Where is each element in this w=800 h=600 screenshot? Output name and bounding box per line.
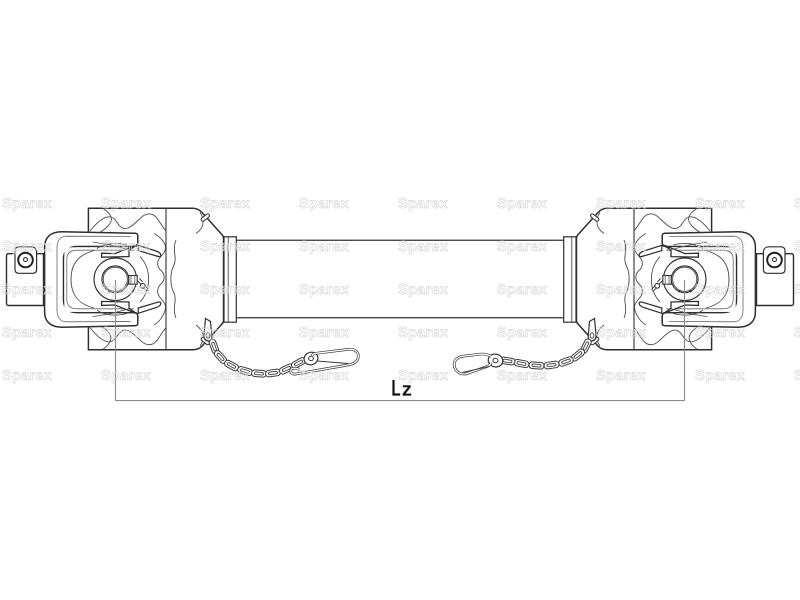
svg-text:Sparex: Sparex: [497, 196, 547, 212]
svg-text:Sparex: Sparex: [398, 282, 448, 298]
svg-text:Sparex: Sparex: [398, 325, 448, 341]
svg-text:Sparex: Sparex: [398, 239, 448, 255]
svg-text:Sparex: Sparex: [596, 239, 646, 255]
svg-text:Sparex: Sparex: [200, 325, 250, 341]
svg-text:Sparex: Sparex: [794, 368, 800, 384]
svg-text:Sparex: Sparex: [695, 239, 745, 255]
svg-text:Sparex: Sparex: [794, 196, 800, 212]
svg-text:Sparex: Sparex: [596, 282, 646, 298]
svg-text:Sparex: Sparex: [200, 239, 250, 255]
svg-text:Sparex: Sparex: [695, 282, 745, 298]
svg-text:Sparex: Sparex: [497, 239, 547, 255]
svg-text:Sparex: Sparex: [2, 239, 52, 255]
svg-text:Sparex: Sparex: [200, 368, 250, 384]
svg-text:Sparex: Sparex: [101, 368, 151, 384]
svg-text:Sparex: Sparex: [2, 325, 52, 341]
svg-text:Sparex: Sparex: [299, 239, 349, 255]
svg-text:Sparex: Sparex: [101, 239, 151, 255]
svg-text:Sparex: Sparex: [398, 196, 448, 212]
svg-text:Sparex: Sparex: [497, 282, 547, 298]
svg-text:Sparex: Sparex: [596, 368, 646, 384]
svg-text:Sparex: Sparex: [2, 196, 52, 212]
svg-text:Sparex: Sparex: [299, 325, 349, 341]
svg-text:Sparex: Sparex: [695, 325, 745, 341]
svg-text:Sparex: Sparex: [200, 282, 250, 298]
svg-text:Sparex: Sparex: [2, 368, 52, 384]
svg-text:Sparex: Sparex: [794, 282, 800, 298]
svg-text:Sparex: Sparex: [398, 368, 448, 384]
svg-text:Sparex: Sparex: [299, 368, 349, 384]
svg-text:Sparex: Sparex: [497, 368, 547, 384]
svg-text:Sparex: Sparex: [596, 325, 646, 341]
svg-text:Sparex: Sparex: [794, 239, 800, 255]
svg-text:Sparex: Sparex: [101, 282, 151, 298]
svg-text:Sparex: Sparex: [299, 282, 349, 298]
svg-text:Sparex: Sparex: [101, 325, 151, 341]
svg-text:Sparex: Sparex: [794, 325, 800, 341]
svg-text:Sparex: Sparex: [497, 325, 547, 341]
svg-text:Sparex: Sparex: [200, 196, 250, 212]
svg-text:Sparex: Sparex: [695, 196, 745, 212]
svg-text:Sparex: Sparex: [596, 196, 646, 212]
svg-text:Sparex: Sparex: [695, 368, 745, 384]
svg-text:Sparex: Sparex: [299, 196, 349, 212]
svg-text:Sparex: Sparex: [2, 282, 52, 298]
svg-text:Sparex: Sparex: [101, 196, 151, 212]
